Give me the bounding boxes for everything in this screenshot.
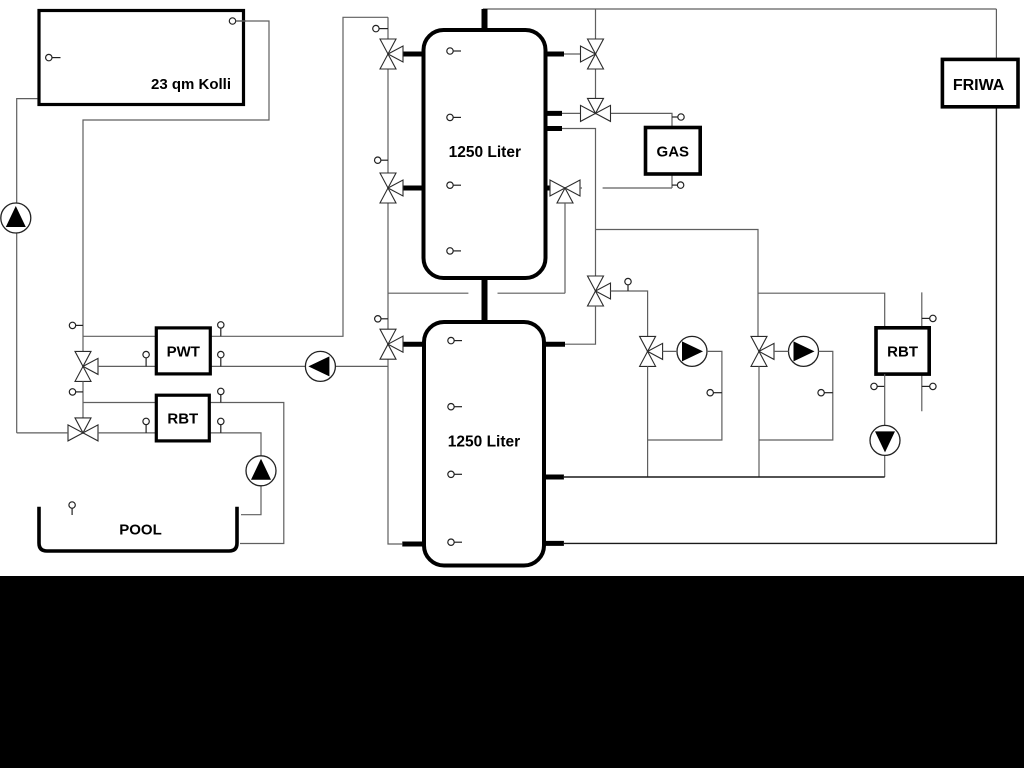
svg-text:POOL: POOL	[119, 522, 162, 539]
svg-text:PWT: PWT	[167, 344, 200, 361]
svg-text:1250 Liter: 1250 Liter	[449, 144, 521, 161]
svg-text:GAS: GAS	[657, 144, 690, 161]
svg-text:1250 Liter: 1250 Liter	[448, 434, 520, 451]
svg-text:RBT: RBT	[887, 344, 918, 361]
svg-text:FRIWA: FRIWA	[953, 77, 1005, 94]
svg-text:RBT: RBT	[167, 411, 198, 428]
svg-text:23 qm Kolli: 23 qm Kolli	[151, 76, 231, 93]
